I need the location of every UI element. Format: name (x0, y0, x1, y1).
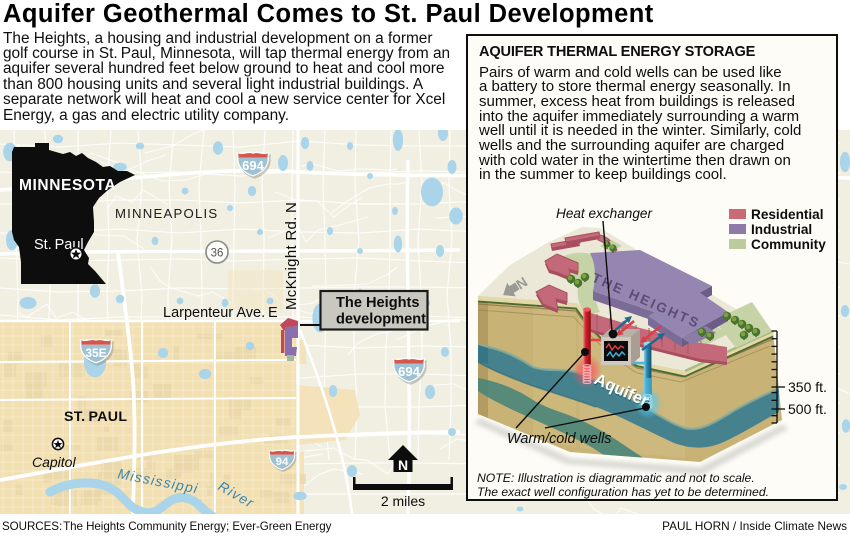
svg-text:MINNESOTA: MINNESOTA (19, 177, 116, 194)
svg-text:development: development (336, 312, 426, 328)
svg-text:N: N (398, 457, 408, 473)
svg-text:94: 94 (276, 456, 289, 468)
svg-text:MINNEAPOLIS: MINNEAPOLIS (115, 206, 218, 221)
svg-text:500 ft.: 500 ft. (788, 401, 827, 417)
svg-text:35E: 35E (85, 346, 106, 360)
svg-text:350 ft.: 350 ft. (788, 379, 827, 395)
svg-text:ST. PAUL: ST. PAUL (64, 409, 127, 425)
svg-text:694: 694 (242, 158, 264, 173)
svg-text:Capitol: Capitol (32, 454, 76, 470)
svg-text:The Heights: The Heights (336, 295, 420, 311)
svg-text:McKnight Rd. N: McKnight Rd. N (283, 202, 300, 310)
svg-text:694: 694 (398, 364, 420, 379)
svg-text:2 miles: 2 miles (381, 493, 425, 509)
svg-text:36: 36 (211, 248, 224, 260)
svg-text:Larpenteur Ave. E: Larpenteur Ave. E (163, 305, 278, 321)
